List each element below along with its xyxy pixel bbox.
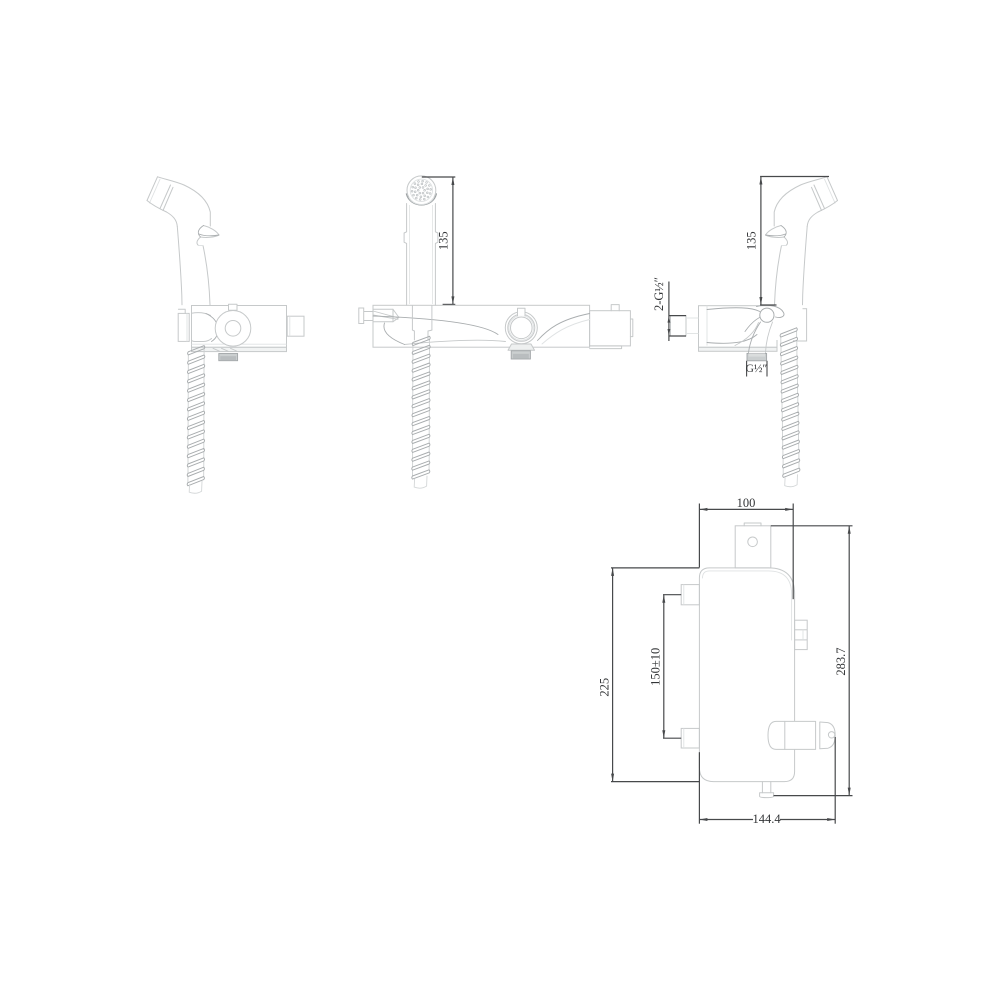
svg-text:G½″: G½″ [746, 363, 768, 375]
svg-text:100: 100 [737, 496, 756, 510]
svg-text:144.4: 144.4 [752, 812, 781, 826]
svg-text:283.7: 283.7 [834, 647, 848, 675]
svg-text:135: 135 [744, 231, 758, 250]
svg-text:225: 225 [597, 678, 611, 697]
svg-text:135: 135 [436, 231, 450, 250]
svg-text:2-G½″: 2-G½″ [652, 277, 666, 311]
svg-text:150±10: 150±10 [649, 648, 663, 686]
